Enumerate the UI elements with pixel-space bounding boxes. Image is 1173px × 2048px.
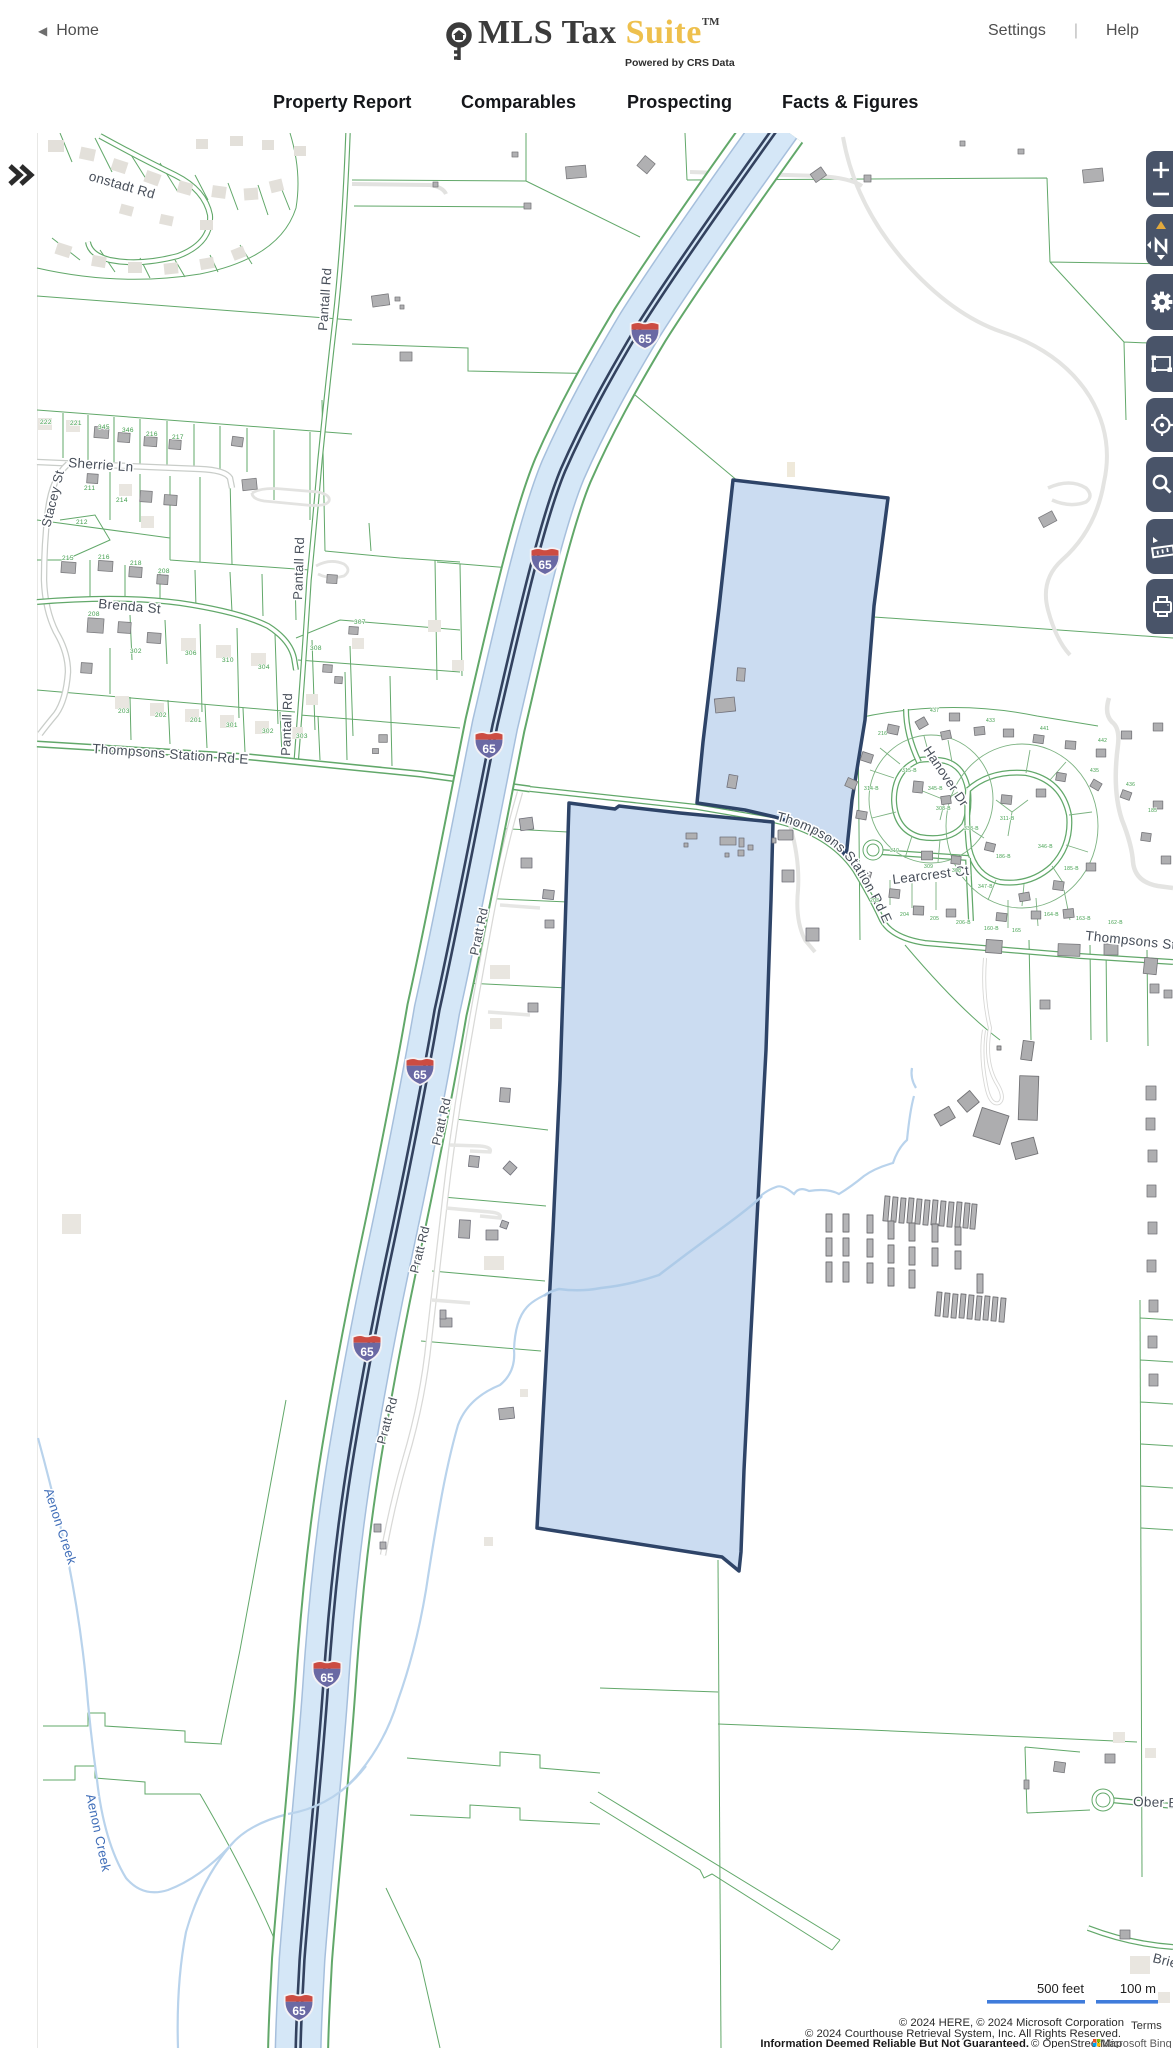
svg-text:345-B: 345-B: [928, 786, 943, 792]
svg-text:347-B: 347-B: [978, 884, 993, 890]
svg-text:310: 310: [890, 848, 899, 854]
svg-text:206-B: 206-B: [956, 920, 971, 926]
svg-text:308-B: 308-B: [936, 806, 951, 812]
svg-text:185: 185: [1148, 808, 1157, 814]
svg-text:162-B: 162-B: [1108, 920, 1123, 926]
svg-text:185-B: 185-B: [1064, 866, 1079, 872]
svg-text:345: 345: [98, 424, 110, 431]
svg-text:165: 165: [1012, 928, 1021, 934]
svg-text:436: 436: [1126, 782, 1135, 788]
svg-text:216: 216: [146, 431, 158, 438]
svg-text:310: 310: [222, 657, 234, 664]
svg-text:221: 221: [70, 420, 82, 427]
svg-text:442: 442: [1098, 738, 1107, 744]
svg-text:435: 435: [1090, 768, 1099, 774]
svg-text:203: 203: [870, 898, 879, 904]
svg-text:302: 302: [262, 728, 274, 735]
svg-text:Ober B: Ober B: [1133, 1794, 1173, 1811]
svg-text:Pantall Rd: Pantall Rd: [290, 537, 307, 600]
svg-text:304: 304: [258, 664, 270, 671]
svg-text:204: 204: [900, 912, 909, 918]
svg-text:201: 201: [190, 717, 202, 724]
svg-text:302: 302: [130, 648, 142, 655]
svg-text:314-B: 314-B: [864, 786, 879, 792]
svg-text:437: 437: [930, 708, 939, 714]
svg-text:303: 303: [296, 733, 308, 740]
svg-text:218: 218: [130, 560, 142, 567]
svg-text:307: 307: [354, 619, 366, 626]
svg-text:160-B: 160-B: [984, 926, 999, 932]
svg-text:441: 441: [1040, 726, 1049, 732]
svg-text:214: 214: [116, 497, 128, 504]
svg-text:164-B: 164-B: [1044, 912, 1059, 918]
svg-text:186-B: 186-B: [996, 854, 1011, 860]
svg-text:100 m: 100 m: [1120, 1981, 1156, 1996]
svg-text:346: 346: [122, 427, 134, 434]
svg-text:311-B: 311-B: [1000, 816, 1015, 822]
svg-text:315-B: 315-B: [902, 768, 917, 774]
svg-text:216: 216: [98, 554, 110, 561]
svg-text:Microsoft Bing: Microsoft Bing: [1102, 2038, 1172, 2048]
svg-text:211: 211: [84, 485, 95, 492]
svg-text:212: 212: [76, 519, 88, 526]
svg-text:163-B: 163-B: [1076, 916, 1091, 922]
svg-text:205: 205: [930, 916, 939, 922]
svg-text:216: 216: [878, 731, 887, 737]
svg-text:222: 222: [40, 419, 52, 426]
svg-text:Pantall Rd: Pantall Rd: [278, 693, 295, 756]
svg-text:Terms: Terms: [1131, 2020, 1162, 2032]
svg-text:306: 306: [185, 650, 197, 657]
svg-text:309: 309: [924, 864, 933, 870]
svg-text:308: 308: [310, 645, 322, 652]
svg-text:433: 433: [986, 718, 995, 724]
svg-text:338-B: 338-B: [964, 826, 979, 832]
svg-text:217: 217: [172, 434, 184, 441]
svg-text:346-B: 346-B: [1038, 844, 1053, 850]
svg-text:202: 202: [155, 712, 167, 719]
svg-text:Information Deemed Reliable Bu: Information Deemed Reliable But Not Guar…: [760, 2038, 1029, 2048]
svg-text:208: 208: [88, 611, 100, 618]
svg-text:308: 308: [952, 868, 961, 874]
svg-text:500 feet: 500 feet: [1037, 1981, 1084, 1996]
svg-text:301: 301: [226, 722, 238, 729]
svg-text:203: 203: [118, 708, 130, 715]
svg-text:215: 215: [62, 555, 74, 562]
svg-text:208: 208: [158, 568, 170, 575]
